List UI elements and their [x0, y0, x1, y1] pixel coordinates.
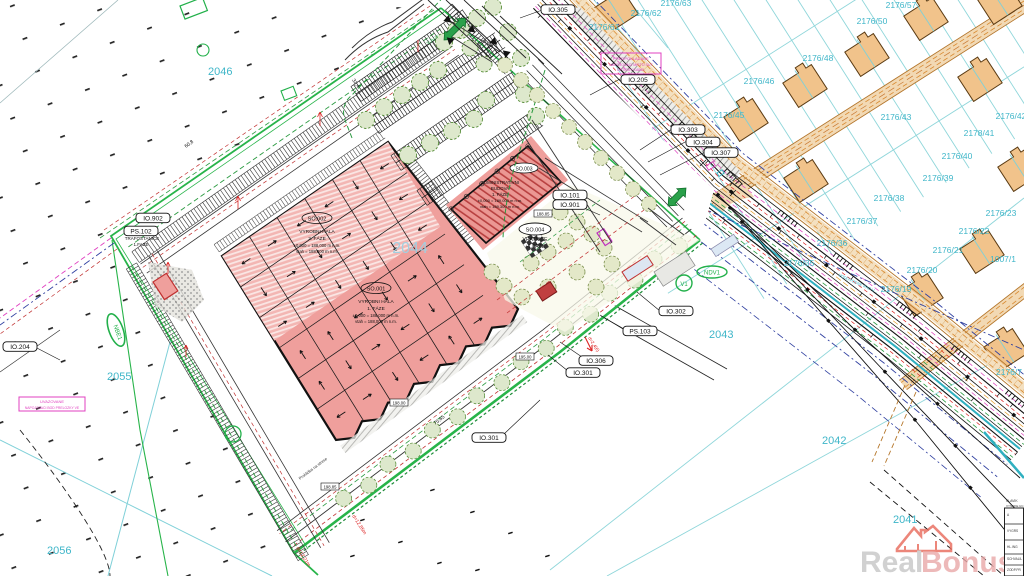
svg-text:2176/20: 2176/20	[907, 265, 938, 275]
svg-text:IO.306: IO.306	[586, 358, 606, 365]
svg-text:IO.205: IO.205	[628, 77, 648, 84]
svg-text:IO.901: IO.901	[560, 202, 580, 209]
svg-text:195.00: 195.00	[519, 355, 532, 360]
svg-text:SO.001: SO.001	[367, 287, 386, 293]
svg-text:2176/39: 2176/39	[923, 173, 954, 183]
svg-text:2. FÁZE: 2. FÁZE	[308, 235, 326, 242]
svg-text:2176/63: 2176/63	[661, 0, 692, 8]
svg-text:vtah = 189,300 m n.m.: vtah = 189,300 m n.m.	[480, 204, 520, 209]
svg-text:2044: 2044	[392, 240, 428, 257]
svg-text:IO.204: IO.204	[10, 344, 30, 351]
svg-text:SLAVIK: SLAVIK	[1006, 499, 1018, 503]
svg-text:2055: 2055	[107, 371, 131, 383]
svg-text:2176/40: 2176/40	[942, 151, 973, 161]
svg-text:UVAZOVANE: UVAZOVANE	[40, 399, 64, 404]
svg-text:2042: 2042	[822, 435, 846, 447]
svg-text:2176/46: 2176/46	[744, 76, 775, 86]
svg-text:1.FAZE: 1.FAZE	[133, 242, 148, 247]
svg-text:2176/22: 2176/22	[959, 226, 990, 236]
svg-text:VYSOKE UC: VYSOKE UC	[1006, 504, 1024, 508]
svg-text:2176/38: 2176/38	[874, 193, 905, 203]
svg-text:vtah = 188,000 m n.m.: vtah = 188,000 m n.m.	[355, 319, 397, 324]
svg-text:Bonus: Bonus	[921, 546, 1014, 576]
svg-text:2176/35: 2176/35	[784, 258, 815, 268]
svg-text:IO.302: IO.302	[666, 308, 686, 315]
svg-text:2176/23: 2176/23	[986, 208, 1017, 218]
svg-text:±0,000 = 189,000 m n.m.: ±0,000 = 189,000 m n.m.	[478, 198, 523, 203]
svg-text:2176/36: 2176/36	[817, 238, 848, 248]
svg-text:IO.307: IO.307	[711, 150, 731, 157]
svg-text:IO.303: IO.303	[678, 127, 698, 134]
svg-text:SO.003: SO.003	[516, 167, 533, 173]
svg-text:BUDOVA: BUDOVA	[491, 186, 509, 191]
svg-text:198.00: 198.00	[393, 401, 406, 406]
svg-text:2176/43: 2176/43	[881, 112, 912, 122]
svg-text:Real: Real	[860, 546, 923, 576]
svg-text:HL.ING: HL.ING	[1007, 545, 1018, 549]
svg-text:SO.004: SO.004	[526, 228, 545, 234]
svg-text:2056: 2056	[47, 545, 71, 557]
svg-text:1007/1: 1007/1	[990, 254, 1016, 264]
svg-text:±0,000 = 188,000 m n.m.: ±0,000 = 188,000 m n.m.	[294, 243, 341, 248]
svg-text:NDV1: NDV1	[704, 271, 721, 277]
svg-text:2043: 2043	[709, 329, 733, 341]
svg-text:NAPOJOVACI BOD PRELOZKY VE: NAPOJOVACI BOD PRELOZKY VE	[25, 406, 80, 410]
svg-text:ADMINISTRATIVNI: ADMINISTRATIVNI	[481, 180, 519, 185]
svg-text:2176/57: 2176/57	[886, 0, 917, 10]
svg-text:OPTICKY KABEL: OPTICKY KABEL	[617, 68, 645, 72]
svg-text:2176/62: 2176/62	[631, 8, 662, 18]
svg-text:2176/21: 2176/21	[933, 245, 964, 255]
svg-text:IO.305: IO.305	[548, 7, 568, 14]
svg-text:2178/41: 2178/41	[964, 128, 995, 138]
svg-text:2176/42: 2176/42	[996, 111, 1024, 121]
svg-text:VRATNICE: VRATNICE	[523, 237, 549, 243]
svg-text:VYROBNI HALA: VYROBNI HALA	[358, 299, 394, 305]
svg-text:SO.002: SO.002	[308, 217, 327, 223]
svg-text:198.85: 198.85	[324, 485, 337, 490]
svg-text:IO.101: IO.101	[560, 192, 580, 199]
svg-text:2176/48: 2176/48	[803, 53, 834, 63]
svg-text:+1.FAZE: +1.FAZE	[525, 244, 545, 250]
svg-text:2176/50: 2176/50	[857, 16, 888, 26]
svg-text:1. FÁZE: 1. FÁZE	[367, 305, 385, 312]
svg-text:2041: 2041	[893, 514, 917, 526]
svg-text:IO.301: IO.301	[479, 435, 499, 442]
svg-text:IO.301: IO.301	[573, 370, 593, 377]
svg-text:V1: V1	[680, 282, 688, 288]
svg-text:2176/7: 2176/7	[996, 367, 1022, 377]
svg-text:2176/19: 2176/19	[881, 284, 912, 294]
svg-text:SCHVALIL: SCHVALIL	[1007, 557, 1022, 561]
svg-text:PS.103: PS.103	[629, 328, 651, 335]
svg-text:ZODP.PR: ZODP.PR	[1007, 568, 1021, 572]
svg-text:NAPOJOVACI MISTO SUT: NAPOJOVACI MISTO SUT	[609, 63, 653, 67]
svg-text:IO.902: IO.902	[143, 215, 163, 222]
svg-text:VYROBNI HALA: VYROBNI HALA	[299, 229, 335, 235]
svg-text:VYGRS: VYGRS	[1007, 529, 1018, 533]
svg-text:IO.304: IO.304	[693, 139, 713, 146]
svg-text:vtah = 188,000 m n.m.: vtah = 188,000 m n.m.	[296, 249, 338, 254]
svg-text:2046: 2046	[208, 66, 232, 78]
svg-text:2176/45: 2176/45	[714, 110, 745, 120]
svg-text:1. FÁZE: 1. FÁZE	[492, 192, 508, 197]
svg-text:PS.102: PS.102	[130, 228, 152, 235]
svg-text:2176/61: 2176/61	[589, 22, 620, 32]
svg-text:TRAFOSTANICE: TRAFOSTANICE	[125, 236, 159, 241]
svg-text:2176/37: 2176/37	[847, 216, 878, 226]
svg-text:PREDPOKLADANE: PREDPOKLADANE	[613, 56, 649, 61]
svg-text:±0,000 = 188,000 m n.m.: ±0,000 = 188,000 m n.m.	[353, 313, 400, 318]
svg-text:188.85: 188.85	[537, 212, 550, 217]
